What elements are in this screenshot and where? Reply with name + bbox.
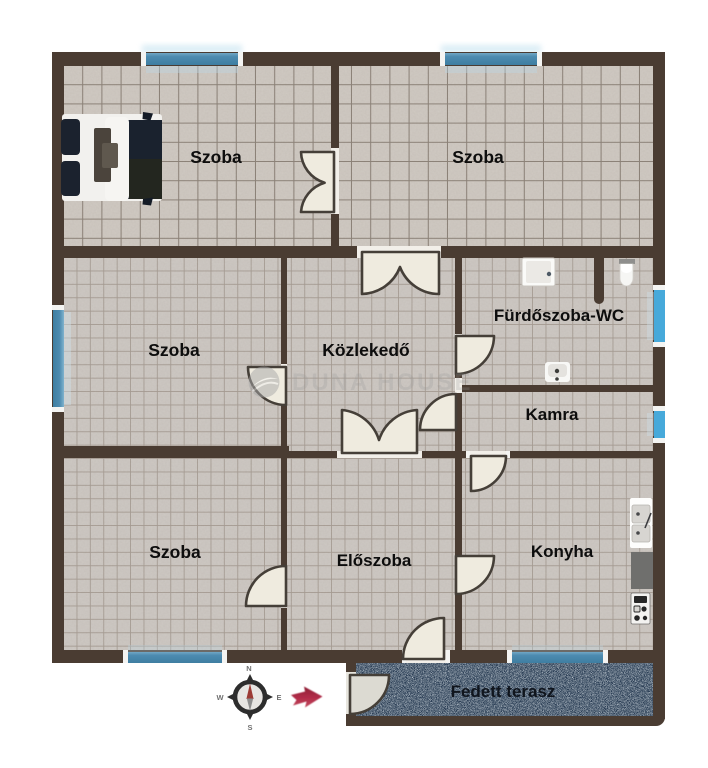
svg-text:Konyha: Konyha xyxy=(531,542,594,561)
svg-text:Fedett terasz: Fedett terasz xyxy=(451,682,556,701)
svg-text:Szoba: Szoba xyxy=(452,147,504,167)
svg-text:Közlekedő: Közlekedő xyxy=(322,340,410,360)
svg-text:DUNA HOUSE: DUNA HOUSE xyxy=(292,369,472,396)
svg-text:Kamra: Kamra xyxy=(526,405,579,424)
svg-text:S: S xyxy=(247,723,252,732)
svg-text:N: N xyxy=(246,664,251,673)
svg-text:Előszoba: Előszoba xyxy=(337,551,412,570)
svg-text:E: E xyxy=(276,693,281,702)
svg-text:W: W xyxy=(216,693,224,702)
svg-text:Szoba: Szoba xyxy=(149,542,201,562)
svg-text:Fürdőszoba-WC: Fürdőszoba-WC xyxy=(494,306,624,325)
svg-text:Szoba: Szoba xyxy=(148,340,200,360)
svg-text:Szoba: Szoba xyxy=(190,147,242,167)
